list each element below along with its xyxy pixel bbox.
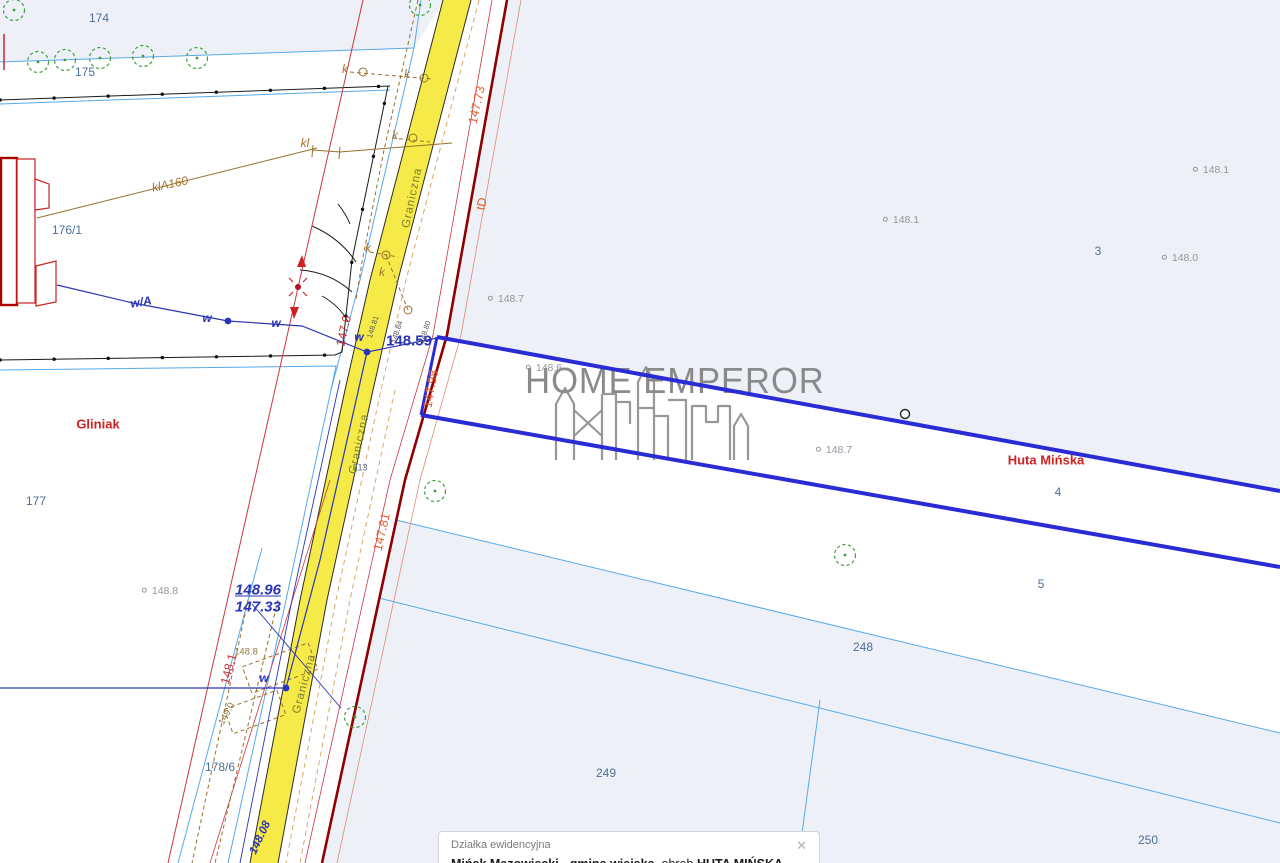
- elev-148-1-b: 148.1: [883, 215, 919, 226]
- parcel-250: 250: [1138, 834, 1158, 846]
- road-parallel-dashed-lines: [286, 0, 479, 863]
- region-gliniak: Gliniak: [76, 418, 119, 431]
- red-cadastral-lines: [4, 0, 521, 863]
- parcel-248: 248: [853, 641, 873, 653]
- cable-k-1: k: [342, 63, 348, 75]
- water-wA: w/A: [129, 294, 152, 310]
- meas-tD: tD: [475, 197, 490, 212]
- utility-cable-lines: [37, 0, 452, 863]
- map-lines-layer: [0, 0, 1280, 863]
- survey-148-96: 148.96: [235, 583, 281, 598]
- region-huta-minska: Huta Mińska: [1008, 454, 1085, 467]
- water-w-4: w: [259, 672, 268, 684]
- elev-148-7-b: 148.7: [816, 445, 852, 456]
- boundary-point-circle: [901, 410, 910, 419]
- parcel-3: 3: [1095, 245, 1102, 257]
- cadastral-map: HOME EMPEROR: [0, 0, 1280, 863]
- elev-148-1-a: 148.1: [1193, 165, 1229, 176]
- parcel-177: 177: [26, 495, 46, 507]
- tree-icons: [4, 0, 856, 728]
- infobox-municipality: Mińsk Mazowiecki - gmina wiejska: [451, 857, 655, 863]
- survey-147-33: 147.33: [235, 600, 281, 615]
- survey-point-marker: [289, 255, 307, 319]
- elev-148-0: 148.0: [1162, 253, 1198, 264]
- parcel-boundary-cyan-lines: [0, 0, 1280, 863]
- water-w-1: w: [202, 312, 211, 324]
- elev-148-7-a: 148.7: [488, 294, 524, 305]
- water-utility-lines: [0, 285, 437, 863]
- parcel-175: 175: [75, 66, 95, 78]
- parcel-249: 249: [596, 767, 616, 779]
- cable-k-3: k: [392, 129, 398, 141]
- elev-148-8: 148.8: [142, 586, 178, 597]
- parcel-176-1: 176/1: [52, 224, 82, 236]
- cable-k-5: k: [379, 266, 385, 278]
- infobox-sep1: , obręb: [655, 857, 697, 863]
- parcel-info-panel: Działka ewidencyjna ✕ Mińsk Mazowiecki -…: [438, 831, 820, 863]
- infobox-title: Działka ewidencyjna: [451, 839, 551, 851]
- parcel-174: 174: [89, 12, 109, 24]
- parcel-178-6: 178/6: [205, 761, 235, 773]
- cable-kl: kl: [301, 137, 310, 149]
- elev-148-6: 148.6: [526, 363, 562, 374]
- cable-k-4: k: [365, 242, 371, 254]
- water-w-2: w: [271, 317, 280, 329]
- parcel-5: 5: [1038, 578, 1045, 590]
- parcel-4: 4: [1055, 486, 1062, 498]
- infobox-parcel-description: Mińsk Mazowiecki - gmina wiejska, obręb …: [451, 857, 807, 863]
- close-icon[interactable]: ✕: [796, 838, 807, 854]
- cable-k-2: k: [404, 68, 410, 80]
- water-w-3: w: [354, 331, 363, 343]
